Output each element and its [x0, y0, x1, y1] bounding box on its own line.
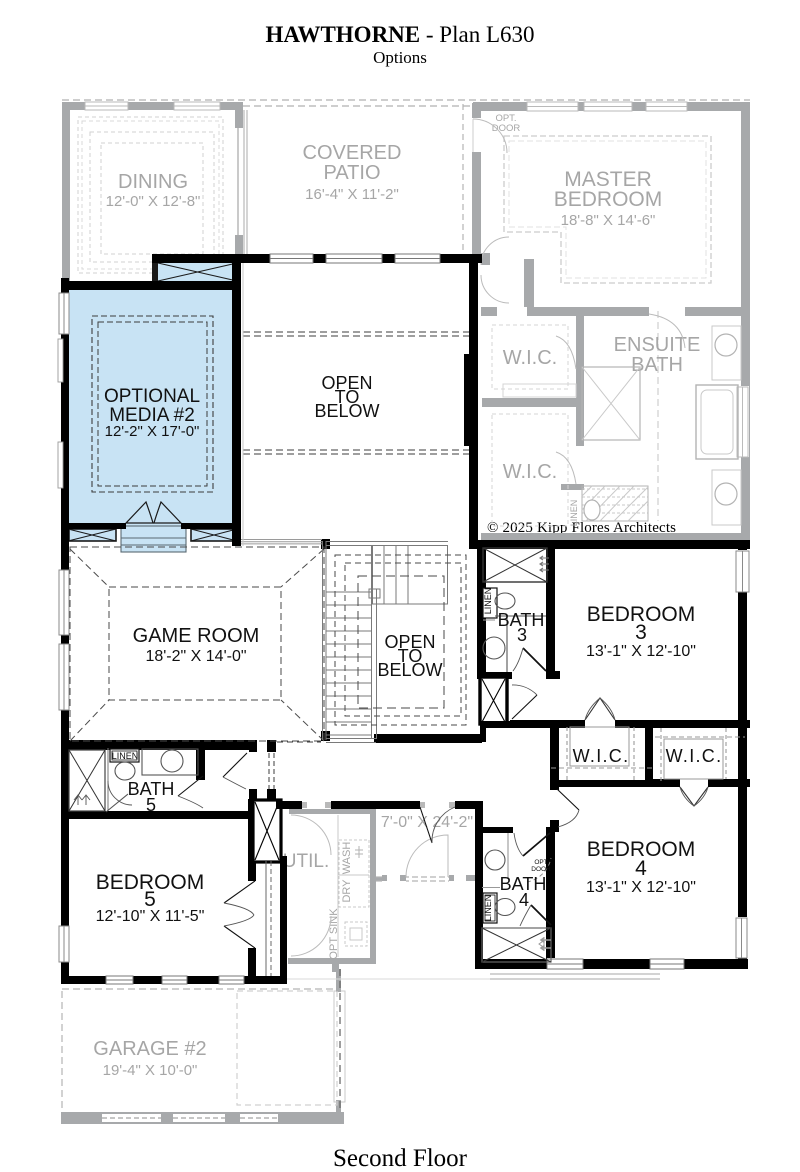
svg-text:DINING: DINING: [118, 171, 188, 193]
svg-text:LINEN: LINEN: [483, 588, 493, 615]
svg-text:ENSUITE: ENSUITE: [614, 334, 701, 356]
svg-text:GAME ROOM: GAME ROOM: [133, 625, 260, 647]
svg-text:BELOW: BELOW: [314, 401, 379, 421]
svg-text:12'-2" X 17'-0": 12'-2" X 17'-0": [105, 423, 200, 440]
svg-text:4: 4: [635, 857, 647, 880]
svg-text:19'-4" X 10'-0": 19'-4" X 10'-0": [103, 1062, 198, 1079]
svg-text:LINEN: LINEN: [483, 895, 493, 922]
svg-text:W.I.C.: W.I.C.: [666, 746, 723, 766]
svg-text:GARAGE #2: GARAGE #2: [93, 1038, 206, 1060]
svg-text:Options: Options: [373, 48, 427, 67]
svg-text:13'-1" X 12'-10": 13'-1" X 12'-10": [586, 879, 696, 896]
svg-text:OPT: OPT: [534, 859, 547, 866]
svg-text:OPT SINK: OPT SINK: [328, 908, 340, 960]
svg-text:18'-2" X 14'-0": 18'-2" X 14'-0": [145, 648, 246, 665]
svg-text:5: 5: [146, 795, 156, 815]
svg-text:16'-4" X 11'-2": 16'-4" X 11'-2": [305, 186, 399, 203]
svg-text:BEDROOM: BEDROOM: [554, 188, 663, 211]
svg-text:LINEN: LINEN: [569, 500, 579, 527]
svg-text:HAWTHORNE - Plan L630: HAWTHORNE - Plan L630: [266, 22, 535, 47]
svg-text:OPTIONAL: OPTIONAL: [104, 386, 200, 407]
svg-text:12'-0" X 12'-8": 12'-0" X 12'-8": [106, 193, 201, 210]
svg-text:12'-10" X 11'-5": 12'-10" X 11'-5": [96, 908, 205, 925]
svg-text:UTIL.: UTIL.: [283, 851, 329, 872]
svg-text:3: 3: [517, 625, 527, 645]
svg-text:DOOR: DOOR: [531, 866, 551, 873]
svg-text:W.I.C.: W.I.C.: [573, 746, 630, 766]
svg-text:BATH: BATH: [631, 354, 683, 376]
svg-text:BELOW: BELOW: [377, 660, 442, 680]
svg-text:W.I.C.: W.I.C.: [503, 347, 557, 369]
svg-text:COVERED: COVERED: [303, 142, 402, 164]
svg-text:PATIO: PATIO: [323, 162, 380, 184]
svg-text:3: 3: [635, 621, 647, 644]
svg-text:W.I.C.: W.I.C.: [503, 461, 557, 483]
svg-text:Second Floor: Second Floor: [333, 1145, 468, 1172]
svg-text:DRY: DRY: [341, 879, 353, 903]
svg-text:WASH: WASH: [341, 842, 353, 875]
svg-text:13'-1" X 12'-10": 13'-1" X 12'-10": [586, 643, 696, 660]
svg-text:4: 4: [519, 890, 529, 910]
svg-text:18'-8" X 14'-6": 18'-8" X 14'-6": [561, 212, 656, 229]
svg-text:LINEN: LINEN: [112, 751, 139, 761]
